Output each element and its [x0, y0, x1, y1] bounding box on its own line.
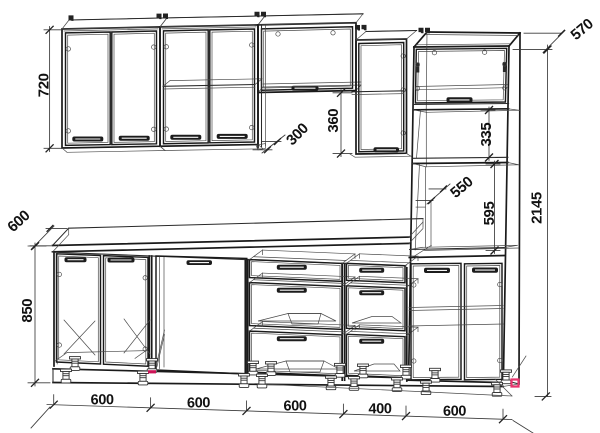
svg-text:2145: 2145	[529, 192, 546, 224]
svg-text:720: 720	[35, 73, 52, 97]
svg-text:335: 335	[478, 123, 495, 147]
svg-text:360: 360	[325, 109, 342, 133]
svg-text:400: 400	[368, 401, 391, 417]
svg-text:595: 595	[481, 202, 498, 226]
svg-text:600: 600	[283, 398, 306, 414]
svg-text:600: 600	[187, 395, 210, 411]
svg-text:600: 600	[443, 403, 466, 419]
svg-text:850: 850	[19, 299, 36, 323]
svg-text:600: 600	[91, 392, 114, 408]
